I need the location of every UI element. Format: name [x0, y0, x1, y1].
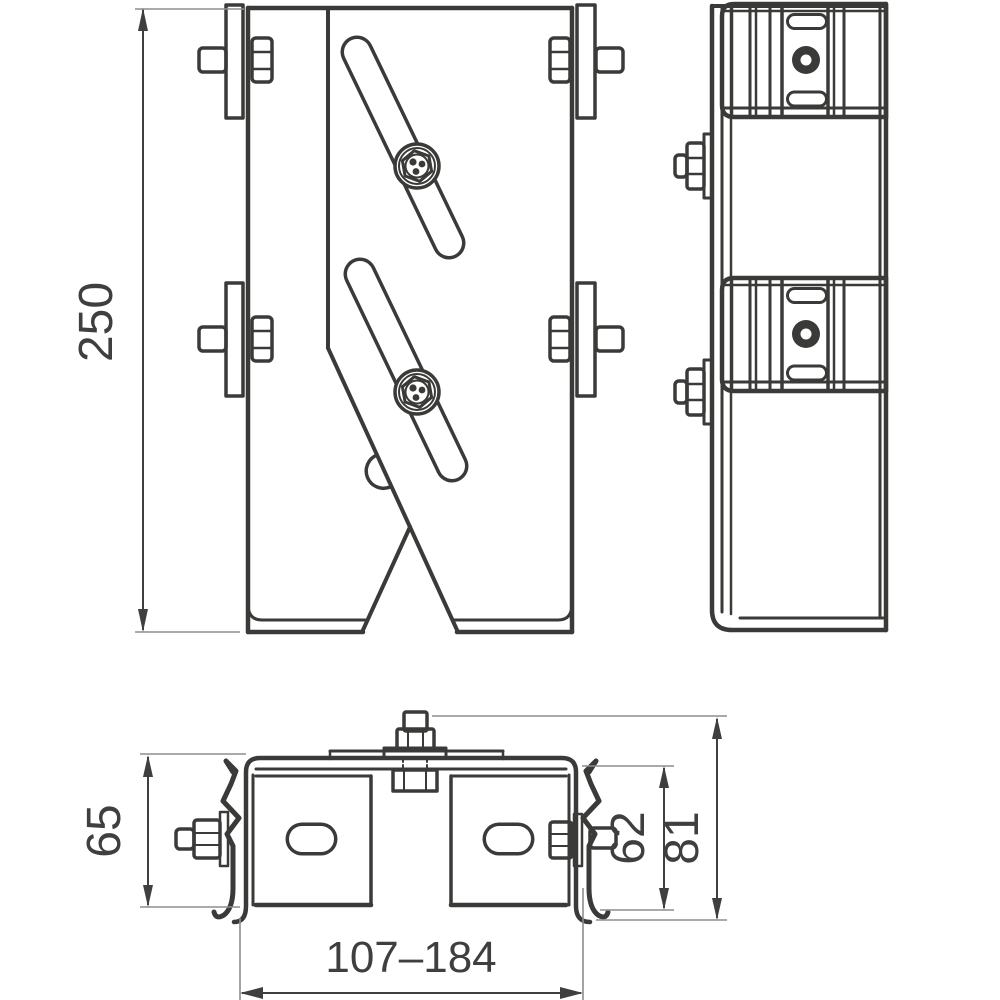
- front-view-adjustment-slots: [357, 52, 452, 466]
- top-view-side-bolts: [176, 812, 616, 866]
- dim-label-81: 81: [656, 811, 709, 864]
- dim-label-65: 65: [78, 804, 131, 857]
- dim-overall-height: 250: [70, 8, 244, 632]
- side-view-clamp-blocks: [722, 4, 886, 391]
- side-view: [675, 4, 886, 630]
- top-view-panels: [256, 776, 566, 905]
- dim-label-62: 62: [602, 811, 655, 864]
- front-view-body-outline: [248, 8, 572, 632]
- dim-total-depth: 81: [432, 716, 727, 920]
- top-view: 65 62 81 107–184: [78, 712, 727, 1000]
- dim-label-250: 250: [70, 282, 123, 362]
- side-view-bolts: [675, 134, 712, 424]
- front-view: 250: [70, 5, 623, 632]
- bracket-technical-drawing: 250: [0, 0, 1000, 1000]
- dim-label-107-184: 107–184: [325, 933, 496, 982]
- technical-drawing-page: 250: [0, 0, 1000, 1000]
